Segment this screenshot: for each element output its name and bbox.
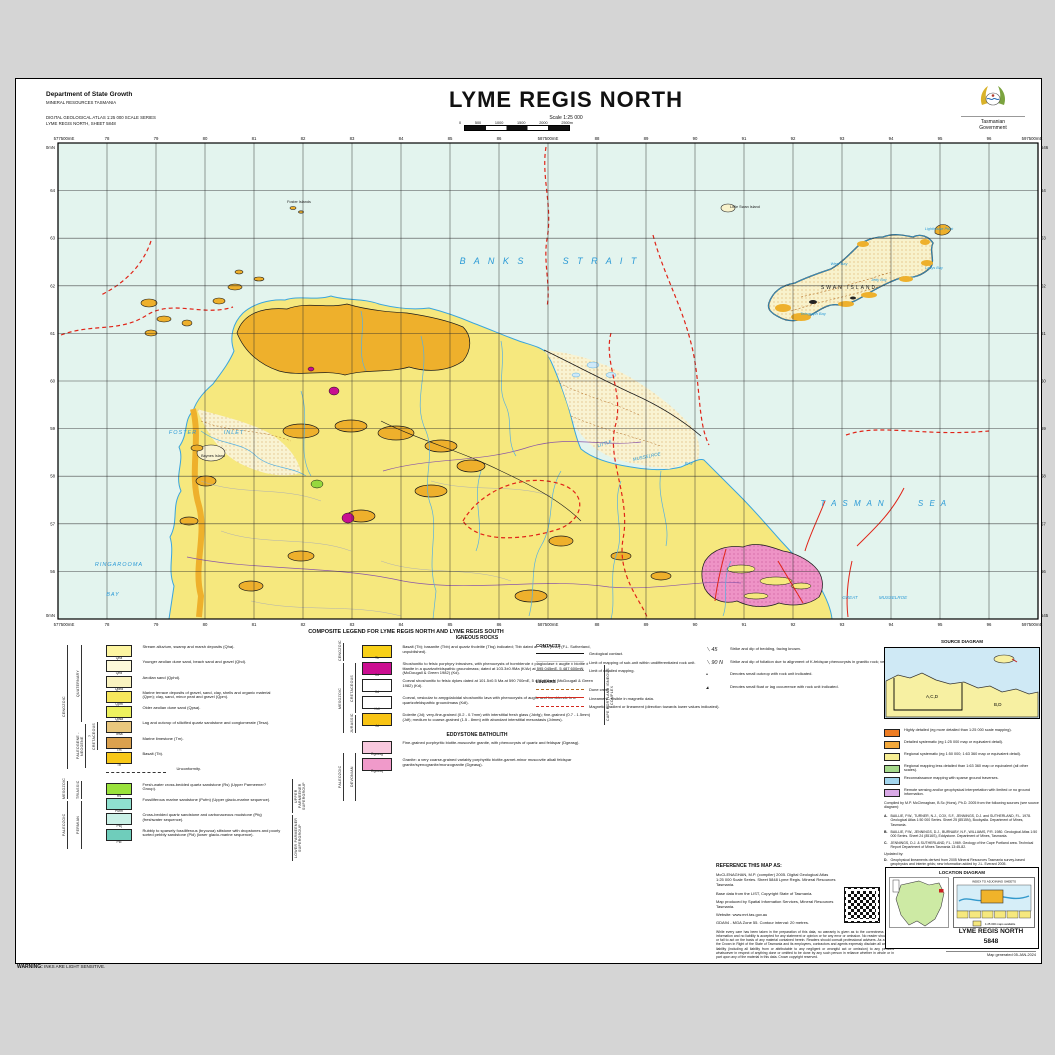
symbols-list: ⟍ 45 Strike and dip of bedding, facing k… [706, 647, 896, 697]
source-diagram: SOURCE DIAGRAM A,C,D B,D Highly detailed… [884, 639, 1040, 869]
easting-label: 89 [644, 622, 649, 627]
source-legend-row: Regional mapping less detailed than 1:63… [884, 764, 1040, 773]
source-reference: B. BAILLIE, P.W., JENNINGS, D.J., BURNAB… [884, 830, 1040, 839]
scalebar-tick: 500 [475, 121, 481, 125]
legend-row: Tb Basalt (Tb). [106, 752, 314, 767]
unit-code: Jd [375, 724, 379, 728]
northing-label: 58 [1041, 474, 1046, 479]
page-title: LYME REGIS NORTH [346, 87, 786, 113]
source-label: Regional systematic (eg 1:50 000; 1:63 3… [904, 752, 1021, 756]
contacts-title: CONTACTS [536, 643, 561, 648]
northing-label: 64 [1041, 188, 1046, 193]
batholith-title: EDDYSTONE BATHOLITH [362, 732, 592, 738]
easting-label: 95 [938, 622, 943, 627]
northing-label: 56 [1041, 569, 1046, 574]
era-cenozoic-ig: CENOZOIC [338, 643, 344, 661]
reference-citation: McCLENAGHAN, M.P. (compiler) 2005. Digit… [716, 872, 836, 888]
unit-description: Basalt (Tb). [136, 752, 280, 757]
warning-note: WARNING: INKS ARE LIGHT SENSITIVE. [17, 964, 105, 970]
easting-label: 78 [105, 136, 110, 141]
source-label: Highly detailed (eg more detailed than 1… [904, 728, 1012, 732]
legend-swatch: Qpm [106, 691, 132, 703]
easting-label: 83 [350, 136, 355, 141]
easting-label: 82 [301, 136, 306, 141]
easting-label: 93 [840, 136, 845, 141]
legend-swatch: Tb [362, 645, 392, 658]
structure-symbol-icon: • [706, 672, 726, 679]
easting-label: 95 [938, 136, 943, 141]
legend-row: Tm Marine limestone (Tm). [106, 737, 314, 752]
legend-swatch: Jd [362, 713, 392, 726]
sea-label: Lighthouse Point [925, 227, 954, 231]
easting-label: 88 [595, 136, 600, 141]
current-sheet-cell [981, 890, 1003, 903]
corner-northing: 5455000mN [46, 613, 55, 618]
northing-label: 63 [50, 236, 55, 241]
sea-label: Ladys Bay [925, 266, 944, 270]
corner-northing: 5465000mN [46, 145, 55, 150]
logo-crest-icon [973, 85, 1013, 111]
unit-description: Younger aeolian dune sand, beach sand an… [136, 660, 280, 665]
unit-description: Rubbly to sparsely fossiliferous (bryozo… [136, 829, 280, 838]
warning-text: INKS ARE LIGHT SENSITIVE. [44, 964, 105, 969]
scalebar-tick: 0 [459, 121, 461, 125]
map-sheet: Department of State Growth MINERAL RESOU… [15, 78, 1042, 964]
source-id: B. [884, 830, 888, 839]
map-location-marker [939, 889, 944, 893]
period-paleogene-neogene: PALEOGENE - NEOGENE [76, 724, 86, 768]
period-cretaceous: CRETACEOUS [350, 663, 356, 713]
easting-label: 89 [644, 136, 649, 141]
header-department-block: Department of State Growth MINERAL RESOU… [46, 91, 266, 128]
reference-block: REFERENCE THIS MAP AS: McCLENAGHAN, M.P.… [716, 863, 896, 959]
northing-label: 59 [1041, 426, 1046, 431]
sedimentary-units-list: Qha Stream alluvium, swamp and marsh dep… [106, 645, 314, 844]
source-legend-row: Detailed systematic (eg 1:25 000 map or … [884, 740, 1040, 749]
linear-row: Magnetic gradient or lineament (directio… [536, 704, 746, 709]
source-text: BAILLIE, P.W., JENNINGS, D.J., BURNABY, … [891, 830, 1041, 839]
unit-description: Stream alluvium, swamp and marsh deposit… [136, 645, 280, 650]
symbol-label: Strike and dip of bedding, facing known. [730, 647, 801, 654]
legend-swatch: Qpsa [106, 706, 132, 718]
northing-label: 60 [1041, 379, 1046, 384]
legend-swatch: Pld [106, 829, 132, 841]
source-swatch [884, 777, 900, 785]
legend-row: Qpsa Older aeolian dune sand (Qpsa). [106, 706, 314, 721]
source-updated-label: Updated by: [884, 852, 1040, 856]
sea-label: Telegraph Bay [800, 311, 827, 316]
era-cenozoic: CENOZOIC [62, 645, 68, 769]
sea-label: B A N K S [460, 256, 527, 266]
unit-description: Cross-bedded quartz sandstone and carbon… [136, 813, 280, 822]
unit-description: Fine-grained porphyritic biotite-muscovi… [396, 741, 598, 746]
line-sample [536, 670, 584, 672]
location-diagram: LOCATION DIAGRAM INDEX TO ADJOINING SHEE… [885, 867, 1039, 949]
legend-swatch: Kd [362, 662, 392, 675]
easting-label: 82 [301, 622, 306, 627]
legend-swatch: Kdl [362, 696, 392, 709]
easting-label: 85 [448, 622, 453, 627]
structure-symbol-icon: ⟍ 45 [706, 647, 726, 654]
source-legend-row: Regional systematic (eg 1:50 000; 1:63 3… [884, 752, 1040, 761]
legend-swatch: Qhd [106, 660, 132, 672]
northing-label: 61 [50, 331, 55, 336]
era-paleozoic: PALEOZOIC [62, 801, 68, 849]
legend-row: Dgeasg Fine-grained porphyritic biotite-… [362, 741, 598, 758]
source-label: Detailed systematic (eg 1:25 000 map or … [904, 740, 1003, 744]
reference-website: Website: www.mrt.tas.gov.au [716, 912, 836, 917]
source-legend-row: Highly detailed (eg more detailed than 1… [884, 728, 1040, 737]
unit-description: Unconformity. [170, 767, 314, 772]
source-label: Remote sensing and/or geophysical interp… [904, 788, 1040, 797]
easting-label: 79 [154, 136, 159, 141]
easting-label: 86 [497, 622, 502, 627]
line-label: Magnetic gradient or lineament (directio… [589, 704, 720, 709]
legend-swatch: Dgeasq [362, 758, 392, 771]
era-mesozoic-ig: MESOZOIC [338, 663, 344, 733]
northing-label: 63 [1041, 236, 1046, 241]
easting-label: 93 [840, 622, 845, 627]
warning-label: WARNING: [17, 964, 43, 970]
reference-base: Base data from the LIST, Copyright State… [716, 891, 836, 896]
period-quaternary: QUATERNARY [76, 645, 82, 722]
location-sheet-name: LYME REGIS NORTH [948, 928, 1034, 935]
easting-label: 88 [595, 622, 600, 627]
line-label: Limit of detailed mapping. [589, 668, 635, 673]
era-mesozoic: MESOZOIC [62, 781, 68, 799]
location-diagram-map: INDEX TO ADJOINING SHEETS 1:25 000 maps … [889, 877, 1035, 928]
line-sample [536, 697, 584, 699]
corner-easting: 577500mE [54, 136, 75, 141]
unit-description: Marine terrace deposits of gravel, sand,… [136, 691, 280, 700]
legend-row: Qha Stream alluvium, swamp and marsh dep… [106, 645, 314, 660]
index-note: 1:25 000 maps available [985, 922, 1016, 926]
map-generated-date: Map generated 05-JAN-2024 [946, 951, 1036, 957]
easting-label: 96 [987, 622, 992, 627]
legend-swatch: Pfq [106, 813, 132, 825]
easting-label: 80 [203, 136, 208, 141]
legend-row: Tesa Lag and outcrop of silicified quart… [106, 721, 314, 736]
sea-label: GREAT [842, 595, 858, 600]
easting-label: 84 [399, 136, 404, 141]
source-text: BAILLIE, P.W., TURNER, N.J., COX, S.F., … [891, 814, 1041, 827]
legend-swatch: Tm [106, 737, 132, 749]
unit-code: Dgeasq [371, 769, 383, 773]
source-diagram-map: A,C,D B,D [884, 647, 1040, 719]
northing-label: 64 [50, 188, 55, 193]
easting-label: 96 [987, 136, 992, 141]
symbol-label: Denotes small outcrop with rock unit ind… [730, 672, 812, 679]
sea-label: FOSTER [169, 430, 197, 436]
map-canvas: 787980818283848586587500mE88899091929394… [46, 129, 1048, 629]
corner-northing: 5465000mN [1041, 145, 1048, 150]
unit-description: Marine limestone (Tm). [136, 737, 280, 742]
sea-label: INLET [224, 430, 245, 436]
scalebar-tick: 2500m [561, 121, 573, 125]
line-label: Dune crest. [589, 687, 609, 692]
easting-label: 91 [742, 622, 747, 627]
source-swatch [884, 789, 900, 797]
source-id: A. [884, 814, 888, 827]
period-triassic: TRIASSIC [76, 781, 82, 799]
source-diagram-title: SOURCE DIAGRAM [884, 639, 1040, 644]
reference-datum: GDA94 - MGA Zone 55. Contour interval: 2… [716, 920, 836, 925]
legend-row: Dgeasq Granite: a very coarse-grained va… [362, 758, 598, 775]
unit-description: Aeolian sand (Qphd). [136, 676, 280, 681]
unit-code: Kd [375, 690, 379, 694]
reference-heading: REFERENCE THIS MAP AS: [716, 863, 896, 869]
northing-label: 57 [1041, 521, 1046, 526]
easting-label: 94 [889, 622, 894, 627]
line-label: Limit of mapping of sub-unit within undi… [589, 660, 695, 665]
legend-row: Qphd Aeolian sand (Qphd). [106, 676, 314, 691]
scalebar-tick: 1000 [495, 121, 503, 125]
legend: COMPOSITE LEGEND FOR LYME REGIS NORTH AN… [56, 629, 1041, 863]
easting-label: 91 [742, 136, 747, 141]
grid-lines [58, 143, 1038, 619]
sea-label: T A S M A N [820, 499, 885, 508]
source-legend-list: Highly detailed (eg more detailed than 1… [884, 728, 1040, 797]
unit-code: Tb [375, 656, 379, 660]
symbol-row: ▴ Denotes small float or lag occurrence … [706, 685, 896, 692]
easting-label: 84 [399, 622, 404, 627]
symbol-label: Denotes small float or lag occurrence wi… [730, 685, 839, 692]
legend-swatch: Tb [106, 752, 132, 764]
period-devonian: DEVONIAN [350, 753, 356, 801]
source-swatch [884, 753, 900, 761]
northing-label: 61 [1041, 331, 1046, 336]
period-cretaceous-q: ?CRETACEOUS [88, 722, 98, 750]
sea-label: MUSSELROE [879, 595, 908, 600]
structure-symbol-icon: ▴ [706, 685, 726, 692]
legend-swatch: Kd [362, 679, 392, 692]
legend-swatch: Qha [106, 645, 132, 657]
source-legend-row: Reconnaissance mapping with sparse groun… [884, 776, 1040, 785]
easting-label: 94 [889, 136, 894, 141]
easting-label: 85 [448, 136, 453, 141]
source-reference: D. Geophysical lineaments derived from 2… [884, 858, 1040, 867]
tasmanian-government-logo: Tasmanian Government [961, 85, 1025, 131]
source-text: Geophysical lineaments derived from 2005… [891, 858, 1041, 867]
sea-label: West Bay [830, 261, 848, 266]
line-sample [536, 689, 584, 691]
unit-description: Older aeolian dune sand (Qpsa). [136, 706, 280, 711]
line-sample [536, 706, 584, 708]
easting-label: 80 [203, 622, 208, 627]
line-sample [536, 653, 584, 655]
source-swatch [884, 741, 900, 749]
location-diagram-title: LOCATION DIAGRAM [886, 870, 1038, 875]
place-label: SWAN ISLAND [821, 285, 877, 291]
northing-label: 57 [50, 521, 55, 526]
place-label: Baynes Island [201, 454, 225, 458]
unit-description: Fresh-water cross-bedded quartz sandston… [136, 783, 280, 792]
unit-code: Kd [375, 673, 379, 677]
period-jurassic: JURASSIC [350, 715, 356, 733]
era-paleozoic-ig: PALEOZOIC [338, 753, 344, 801]
source-compiled: Compiled by M.P. McClenaghan, B.Sc (Hons… [884, 801, 1040, 810]
northing-label: 62 [50, 283, 55, 288]
source-region-b: B,D [994, 702, 1002, 707]
source-region-a: A,C,D [926, 694, 939, 699]
legend-swatch: Tesa [106, 721, 132, 733]
legend-swatch: Pufm [106, 798, 132, 810]
source-reference: A. BAILLIE, P.W., TURNER, N.J., COX, S.F… [884, 814, 1040, 827]
unit-code: Tb [117, 763, 121, 767]
easting-label: 81 [252, 136, 257, 141]
place-label: Foster Islands [287, 200, 311, 204]
legend-swatch: Dgeasg [362, 741, 392, 754]
legend-row: Qhd Younger aeolian dune sand, beach san… [106, 660, 314, 675]
unit-description: Lag and outcrop of silicified quartz san… [136, 721, 280, 726]
triassic-sandstone-spot [311, 480, 323, 488]
source-label: Regional mapping less detailed than 1:63… [904, 764, 1040, 773]
symbol-row: ⟍ 90 N Strike and dip of foliation due t… [706, 660, 896, 667]
source-id: C. [884, 841, 888, 850]
symbol-label: Strike and dip of foliation due to align… [730, 660, 894, 667]
source-updated-list: D. Geophysical lineaments derived from 2… [884, 858, 1040, 867]
easting-label: 86 [497, 136, 502, 141]
corner-northing: 5455000mN [1041, 613, 1048, 618]
legend-swatch: Rs [106, 783, 132, 795]
unit-code: Pld [117, 840, 122, 844]
legend-row: Pufm Fossiliferous marine sandstone (Puf… [106, 798, 314, 813]
easting-label: 78 [105, 622, 110, 627]
reference-produced: Map produced by Spatial Information Serv… [716, 899, 836, 909]
legend-row: Pfq Cross-bedded quartz sandstone and ca… [106, 813, 314, 828]
easting-label: 587500mE [538, 136, 559, 141]
sea-label: S E A [918, 499, 948, 508]
legend-row: Unconformity. [106, 767, 314, 782]
sea-label: S T R A I T [563, 256, 640, 266]
source-legend-row: Remote sensing and/or geophysical interp… [884, 788, 1040, 797]
unit-description: Granite: a very coarse-grained variably … [396, 758, 598, 767]
place-label: Little Swan Island [730, 205, 760, 209]
qr-code [844, 887, 880, 923]
unit-description: Fossiliferous marine sandstone (Pufm) (U… [136, 798, 280, 803]
source-text: JENNINGS, D.J. & SUTHERLAND, F.L. 1969. … [891, 841, 1041, 850]
easting-label: 92 [791, 622, 796, 627]
legend-row: Jd Dolerite (Jd); very-fine-grained (0.2… [362, 713, 598, 730]
index-title: INDEX TO ADJOINING SHEETS [972, 880, 1016, 884]
source-references-list: A. BAILLIE, P.W., TURNER, N.J., COX, S.F… [884, 814, 1040, 850]
corner-easting: 597500mE [1022, 136, 1043, 141]
easting-label: 587500mE [538, 622, 559, 627]
page: { "header": { "department": "Department … [0, 0, 1055, 1055]
unit-description: Dolerite (Jd); very-fine-grained (0.2 - … [396, 713, 598, 722]
corner-easting: 597500mE [1022, 622, 1043, 627]
sea-label: RINGAROOMA [95, 562, 143, 568]
easting-label: 92 [791, 136, 796, 141]
source-swatch [884, 765, 900, 773]
location-sheet-number: 5848 [948, 938, 1034, 945]
northing-label: 56 [50, 569, 55, 574]
northing-label: 59 [50, 426, 55, 431]
easting-label: 81 [252, 622, 257, 627]
reference-disclaimer: While every care has been taken in the p… [716, 930, 894, 960]
symbol-row: ⟍ 45 Strike and dip of bedding, facing k… [706, 647, 896, 654]
legend-swatch [106, 772, 166, 773]
department-name: Department of State Growth [46, 91, 266, 98]
sea-label: BAY [106, 592, 120, 598]
sea-label: Jetty Bay [870, 278, 888, 282]
source-reference: C. JENNINGS, D.J. & SUTHERLAND, F.L. 196… [884, 841, 1040, 850]
title-block: LYME REGIS NORTH Scale 1:25 000 [346, 87, 786, 121]
linears-title: LINEARS [536, 679, 556, 684]
legend-swatch: Qphd [106, 676, 132, 688]
series-line2: LYME REGIS NORTH, SHEET 5848 [46, 121, 266, 127]
unit-code: Kdl [375, 707, 380, 711]
northing-label: 62 [1041, 283, 1046, 288]
unit-code: Dgeasg [371, 752, 383, 756]
source-swatch [884, 729, 900, 737]
line-label: Geological contact. [589, 651, 623, 656]
sea-label: BAY [685, 461, 695, 466]
northing-label: 58 [50, 474, 55, 479]
batholith-units-list: Dgeasg Fine-grained porphyritic biotite-… [362, 741, 598, 775]
symbol-row: • Denotes small outcrop with rock unit i… [706, 672, 896, 679]
line-sample [536, 661, 584, 663]
corner-easting: 577500mE [54, 622, 75, 627]
legend-row: Qpm Marine terrace deposits of gravel, s… [106, 691, 314, 706]
easting-label: 90 [693, 136, 698, 141]
easting-label: 79 [154, 622, 159, 627]
easting-label: 83 [350, 622, 355, 627]
scalebar-tick: 1500 [517, 121, 525, 125]
scalebar-tick: 2000 [539, 121, 547, 125]
legend-row: Rs Fresh-water cross-bedded quartz sands… [106, 783, 314, 798]
legend-row: Pld Rubbly to sparsely fossiliferous (br… [106, 829, 314, 844]
period-permian: PERMIAN [76, 801, 82, 849]
structure-symbol-icon: ⟍ 90 N [706, 660, 726, 667]
line-label: Lineament - visible in magnetic data. [589, 696, 654, 701]
northing-label: 60 [50, 379, 55, 384]
igneous-title: IGNEOUS ROCKS [362, 635, 592, 641]
easting-label: 90 [693, 622, 698, 627]
division-name: MINERAL RESOURCES TASMANIA [46, 100, 266, 105]
source-label: Reconnaissance mapping with sparse groun… [904, 776, 999, 780]
